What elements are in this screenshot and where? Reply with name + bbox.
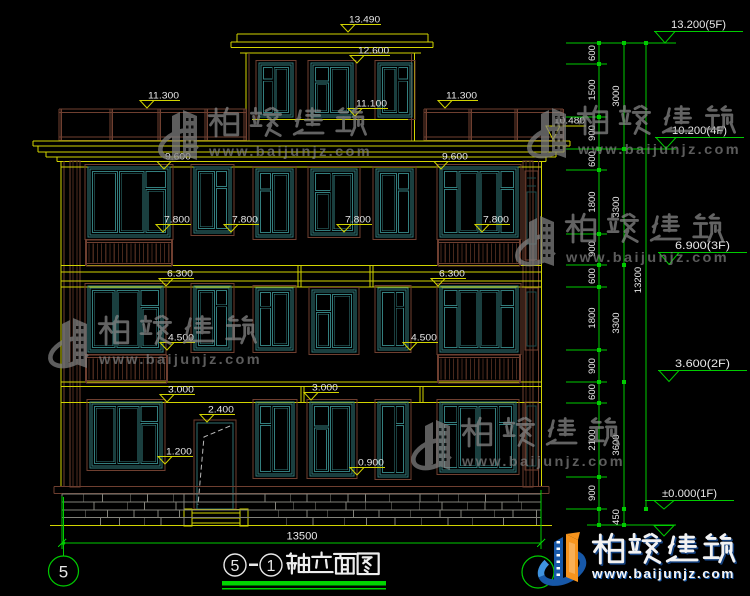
svg-text:13.490: 13.490 bbox=[349, 15, 380, 26]
svg-text:11.100: 11.100 bbox=[356, 99, 387, 110]
svg-text:600: 600 bbox=[587, 384, 598, 400]
svg-text:3300: 3300 bbox=[611, 312, 622, 333]
svg-text:1800: 1800 bbox=[587, 307, 598, 328]
svg-text:±0.000(1F): ±0.000(1F) bbox=[662, 488, 717, 500]
svg-text:13500: 13500 bbox=[287, 531, 318, 543]
svg-text:1: 1 bbox=[267, 558, 276, 575]
svg-text:6.300: 6.300 bbox=[167, 269, 193, 280]
svg-text:1.200: 1.200 bbox=[166, 447, 192, 458]
svg-text:12.600: 12.600 bbox=[358, 46, 389, 57]
svg-text:1500: 1500 bbox=[587, 79, 598, 100]
svg-text:9.600: 9.600 bbox=[442, 152, 468, 163]
svg-text:7.800: 7.800 bbox=[483, 215, 509, 226]
svg-text:600: 600 bbox=[587, 45, 598, 61]
svg-text:11.300: 11.300 bbox=[148, 91, 179, 102]
svg-text:5: 5 bbox=[231, 558, 240, 575]
svg-text:450: 450 bbox=[611, 509, 622, 525]
svg-text:www.baijunjz.com: www.baijunjz.com bbox=[461, 454, 625, 469]
svg-text:6.300: 6.300 bbox=[439, 269, 465, 280]
svg-text:3.600(2F): 3.600(2F) bbox=[675, 358, 730, 370]
svg-text:900: 900 bbox=[587, 485, 598, 501]
svg-text:13.200(5F): 13.200(5F) bbox=[671, 19, 726, 31]
svg-text:3000: 3000 bbox=[611, 85, 622, 106]
svg-text:www.baijunjz.com: www.baijunjz.com bbox=[208, 144, 372, 159]
svg-text:3.000: 3.000 bbox=[168, 385, 194, 396]
svg-text:900: 900 bbox=[587, 358, 598, 374]
svg-text:7.800: 7.800 bbox=[164, 215, 190, 226]
svg-text:www.baijunjz.com: www.baijunjz.com bbox=[577, 142, 741, 157]
svg-text:7.800: 7.800 bbox=[345, 215, 371, 226]
svg-text:2.400: 2.400 bbox=[208, 405, 234, 416]
svg-text:1800: 1800 bbox=[587, 191, 598, 212]
svg-text:3.000: 3.000 bbox=[312, 383, 338, 394]
svg-text:www.baijunjz.com: www.baijunjz.com bbox=[591, 566, 735, 581]
svg-text:0.900: 0.900 bbox=[358, 458, 384, 469]
svg-text:4.500: 4.500 bbox=[411, 333, 437, 344]
svg-text:600: 600 bbox=[587, 268, 598, 284]
svg-text:5: 5 bbox=[59, 563, 68, 582]
svg-text:www.baijunjz.com: www.baijunjz.com bbox=[565, 250, 729, 265]
svg-text:13200: 13200 bbox=[633, 267, 644, 293]
svg-text:www.baijunjz.com: www.baijunjz.com bbox=[98, 352, 262, 367]
svg-text:11.300: 11.300 bbox=[446, 91, 477, 102]
svg-text:7.800: 7.800 bbox=[232, 215, 258, 226]
